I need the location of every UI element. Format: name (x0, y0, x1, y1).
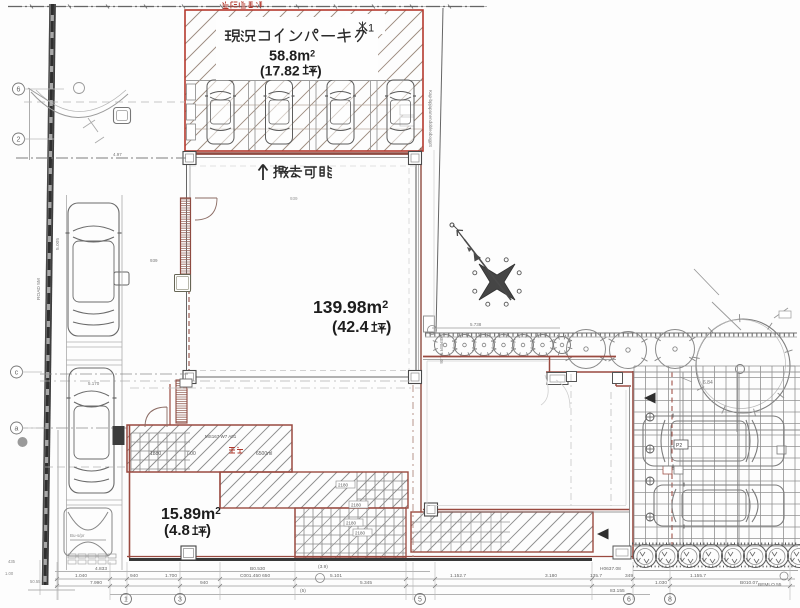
svg-text:349: 349 (625, 573, 633, 579)
svg-text:1.040: 1.040 (75, 573, 87, 579)
svg-text:4.833: 4.833 (95, 566, 107, 572)
svg-text:(42.4: (42.4 (332, 319, 369, 336)
svg-text:4.97: 4.97 (113, 152, 122, 157)
svg-text:(3.9): (3.9) (318, 564, 328, 570)
svg-text:C001.450 650: C001.450 650 (240, 573, 270, 579)
svg-text:1.152.7: 1.152.7 (450, 573, 466, 579)
svg-text:940: 940 (200, 580, 208, 586)
svg-text:1.00: 1.00 (5, 571, 14, 576)
svg-text:5.345: 5.345 (360, 580, 372, 586)
svg-text:7.990: 7.990 (90, 580, 102, 586)
svg-text:H0637.08: H0637.08 (600, 566, 621, 572)
svg-text:3.180: 3.180 (545, 573, 557, 579)
svg-text:5.005: 5.005 (55, 238, 61, 250)
svg-text:1880: 1880 (150, 451, 161, 457)
svg-text:8: 8 (668, 597, 672, 604)
svg-text:6500ml: 6500ml (256, 451, 272, 457)
svg-text:ROAD 5M: ROAD 5M (36, 278, 42, 300)
svg-text:50.55: 50.55 (30, 579, 41, 584)
svg-text:6: 6 (17, 87, 21, 94)
svg-text:435: 435 (8, 559, 16, 564)
svg-text:939: 939 (290, 196, 298, 201)
svg-text:B010.07: B010.07 (740, 580, 758, 586)
svg-text:1.155.7: 1.155.7 (690, 573, 706, 579)
svg-text:83.155: 83.155 (610, 588, 625, 594)
svg-text:2180: 2180 (338, 483, 349, 488)
svg-text:2180: 2180 (351, 503, 362, 508)
svg-text:(5): (5) (300, 588, 306, 594)
svg-text:BEMLO.55: BEMLO.55 (758, 582, 782, 588)
svg-text:135.7: 135.7 (590, 573, 602, 579)
svg-text:5.170: 5.170 (88, 381, 100, 386)
svg-text:5.738: 5.738 (470, 322, 482, 327)
svg-text:5: 5 (418, 597, 422, 604)
svg-text:): ) (206, 522, 211, 539)
svg-text:a: a (15, 426, 19, 433)
svg-text:2180: 2180 (355, 531, 366, 536)
svg-text:6: 6 (627, 597, 631, 604)
svg-text:7.00: 7.00 (186, 451, 196, 457)
svg-text:): ) (317, 63, 322, 79)
svg-text:2: 2 (17, 137, 21, 144)
svg-text:2180: 2180 (346, 521, 357, 526)
svg-text:B0.530: B0.530 (250, 566, 266, 572)
svg-text:3: 3 (178, 597, 182, 604)
svg-text:MS167 W7 A01: MS167 W7 A01 (205, 434, 237, 439)
svg-text:(4.8: (4.8 (164, 522, 190, 539)
svg-text:Bu-s/pr: Bu-s/pr (70, 533, 85, 538)
svg-text:5.101: 5.101 (330, 573, 342, 579)
svg-text:1.700: 1.700 (165, 573, 177, 579)
svg-text:): ) (386, 319, 391, 336)
svg-text:940: 940 (130, 573, 138, 579)
svg-text:Kap-bpjapanendobleobogpS: Kap-bpjapanendobleobogpS (428, 90, 433, 147)
svg-text:c: c (15, 370, 19, 377)
svg-text:(17.82: (17.82 (260, 63, 300, 79)
svg-text:939: 939 (150, 258, 158, 263)
svg-text:SERER 11.46: SERER 11.46 (439, 336, 444, 364)
svg-text:1: 1 (368, 23, 374, 35)
svg-text:6.84: 6.84 (703, 380, 713, 386)
svg-text:15.89m2: 15.89m2 (161, 506, 221, 523)
svg-text:139.98m2: 139.98m2 (313, 297, 388, 317)
svg-text:P2: P2 (676, 443, 682, 449)
svg-text:1: 1 (124, 597, 128, 604)
svg-text:1.030: 1.030 (655, 580, 667, 586)
